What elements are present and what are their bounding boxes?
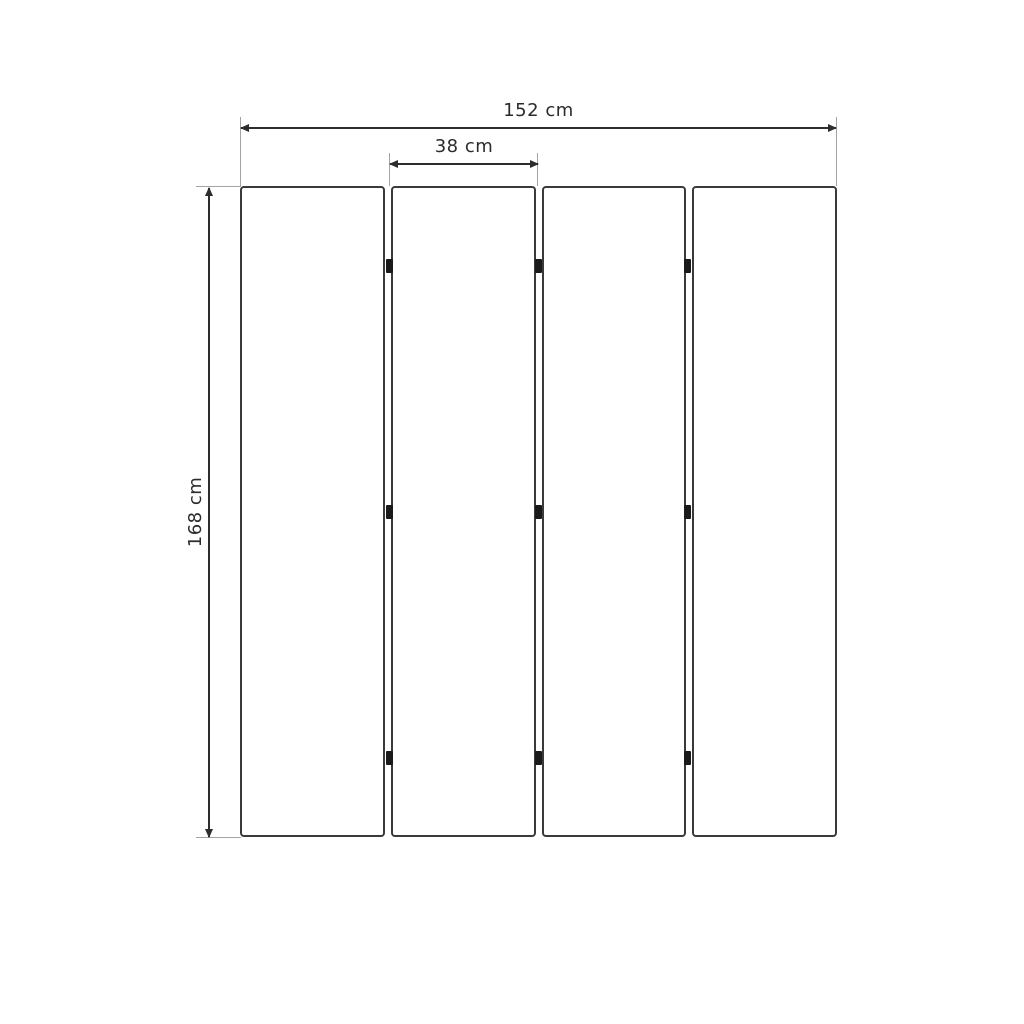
room-divider-dimension-diagram: 152 cm 38 cm 168 cm	[0, 0, 1024, 1024]
hinge-icon	[535, 751, 542, 765]
extension-line-height-bottom	[196, 837, 241, 838]
dimension-line-height	[208, 188, 210, 837]
hinge-icon	[684, 751, 691, 765]
dimension-label-panel-width: 38 cm	[390, 137, 538, 157]
hinge-icon	[684, 259, 691, 273]
extension-line-panel-right	[537, 153, 538, 186]
panel-2	[391, 186, 536, 837]
extension-line-height-top	[196, 186, 241, 187]
hinge-icon	[386, 751, 393, 765]
extension-line-panel-left	[389, 153, 390, 186]
panel-3	[542, 186, 687, 837]
hinge-icon	[535, 259, 542, 273]
dimension-line-total-width	[241, 127, 836, 129]
dimension-line-panel-width	[390, 163, 538, 165]
panel-4	[692, 186, 837, 837]
hinge-icon	[684, 505, 691, 519]
dimension-label-total-width: 152 cm	[241, 101, 836, 121]
hinge-icon	[535, 505, 542, 519]
panel-1	[240, 186, 385, 837]
hinge-icon	[386, 505, 393, 519]
hinge-icon	[386, 259, 393, 273]
